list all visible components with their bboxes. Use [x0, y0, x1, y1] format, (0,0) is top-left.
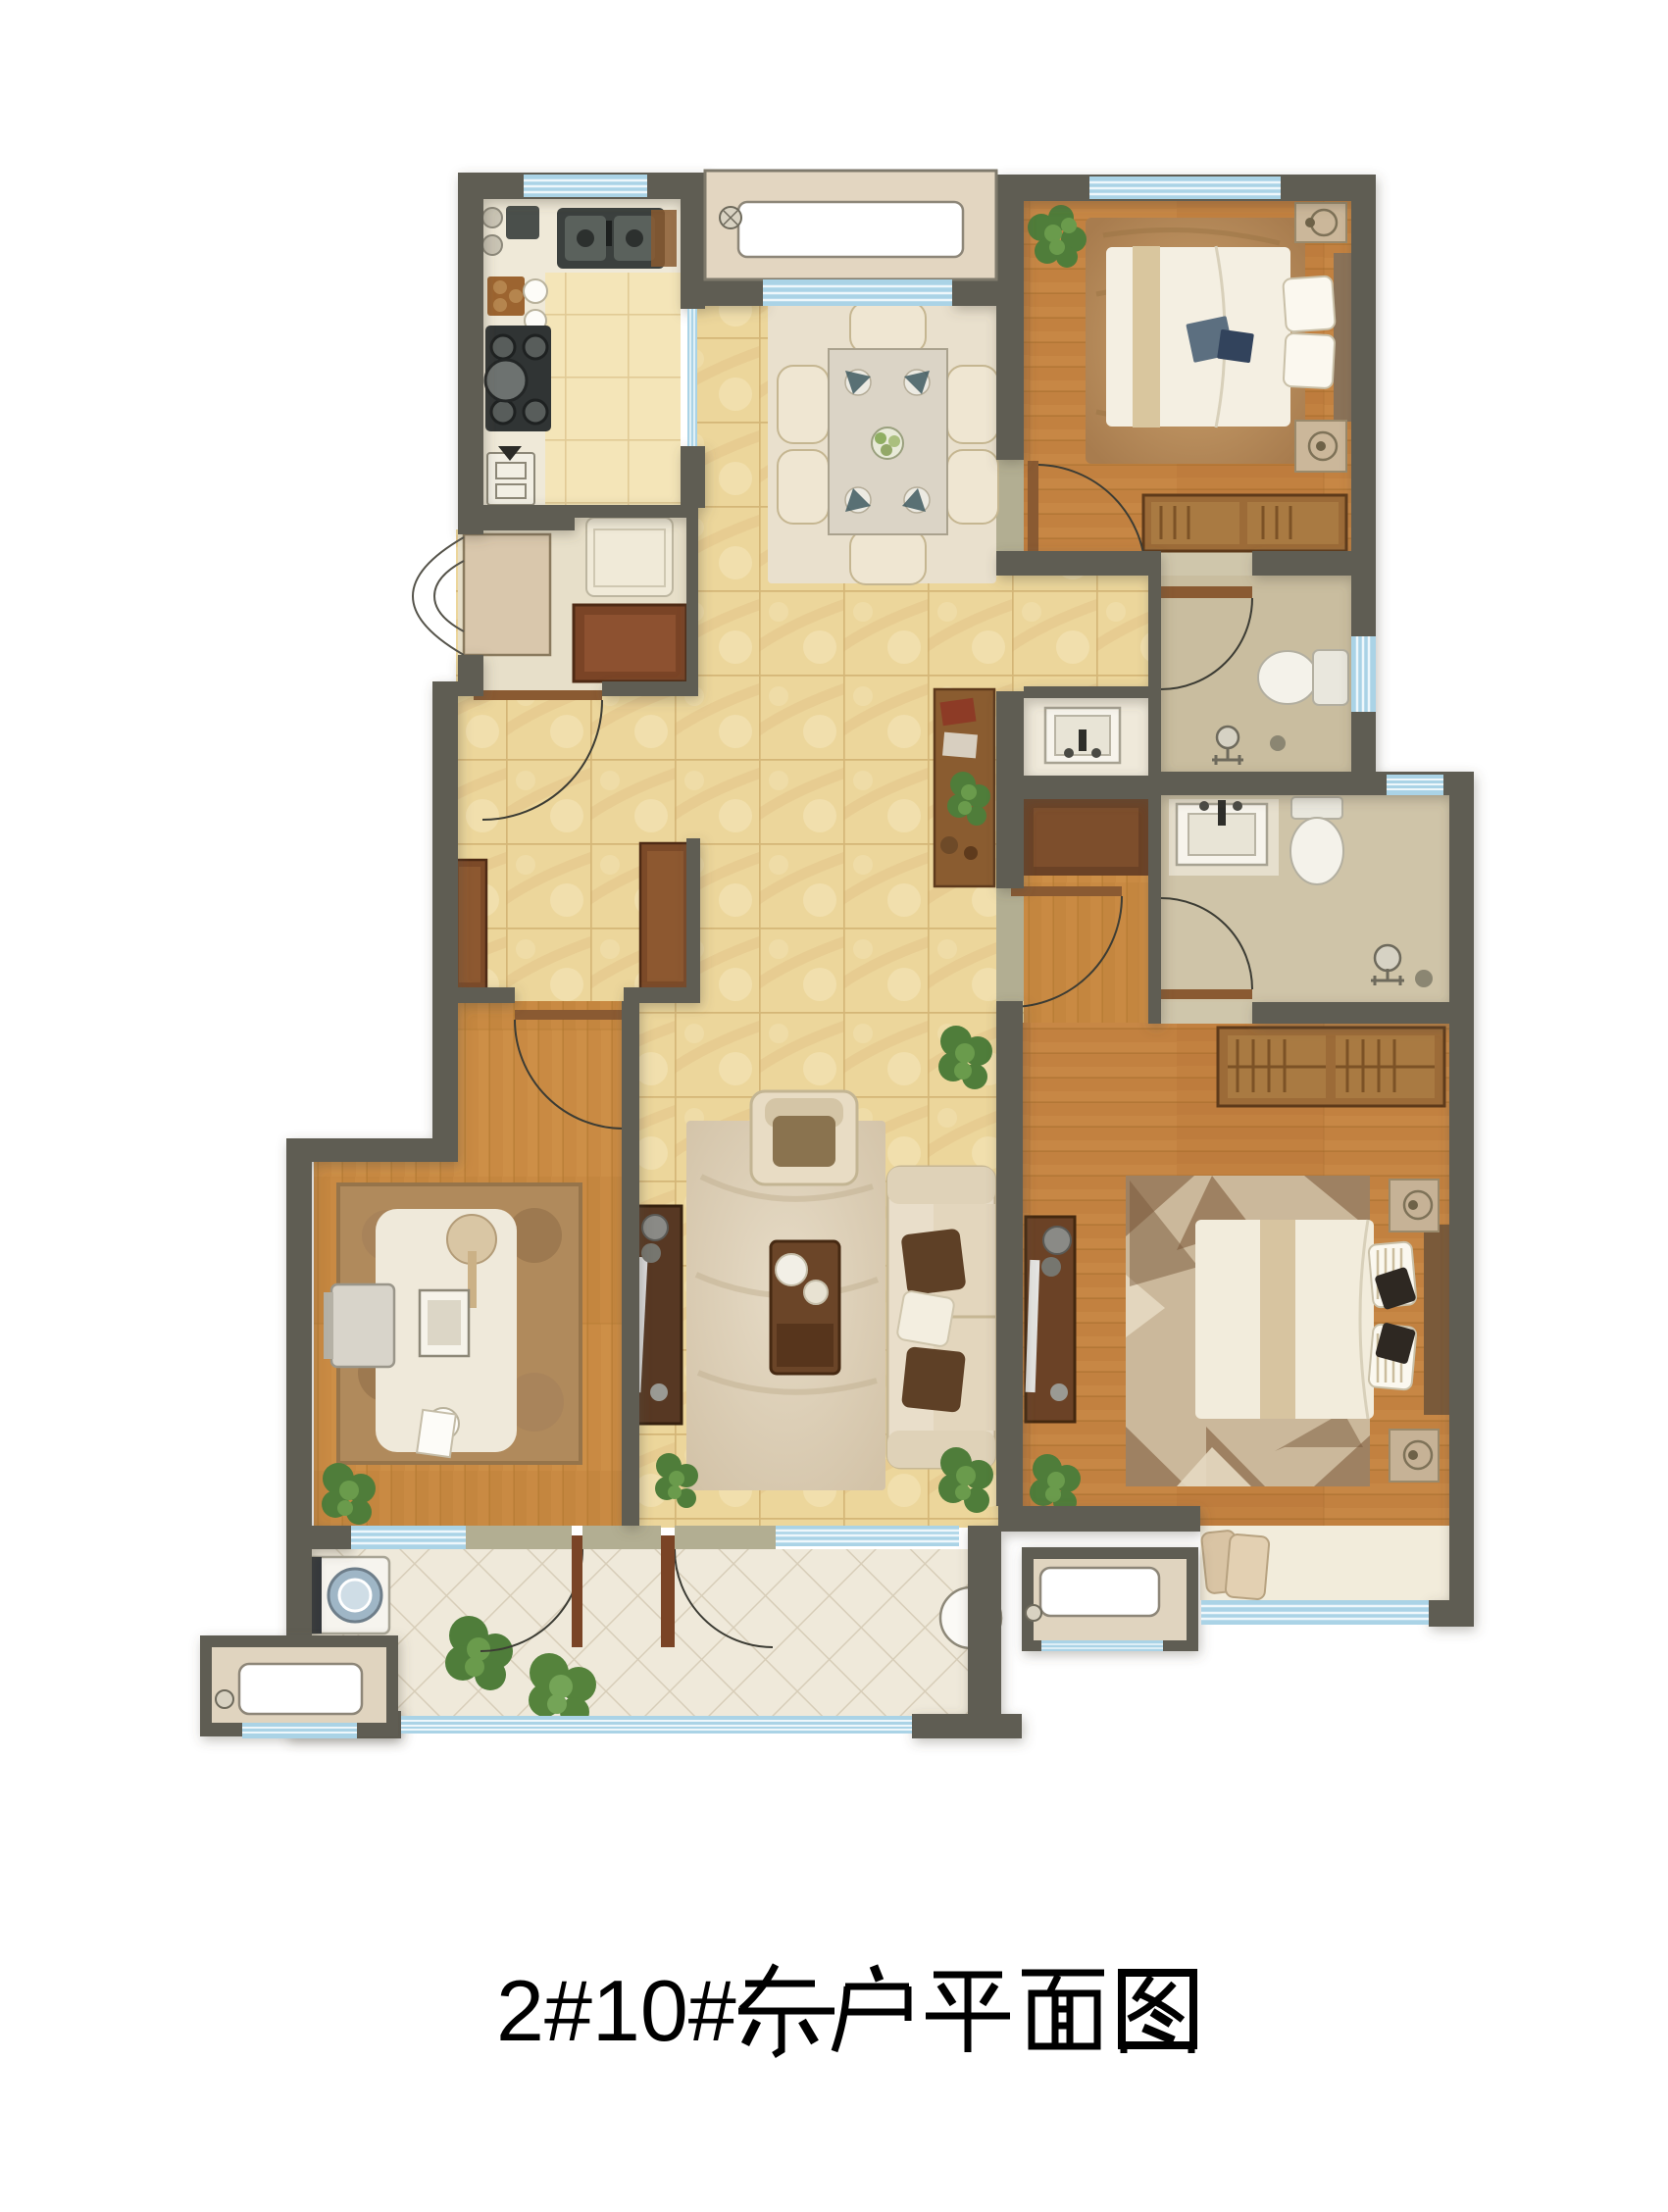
svg-text:2#10#: 2#10#: [496, 1962, 736, 2059]
